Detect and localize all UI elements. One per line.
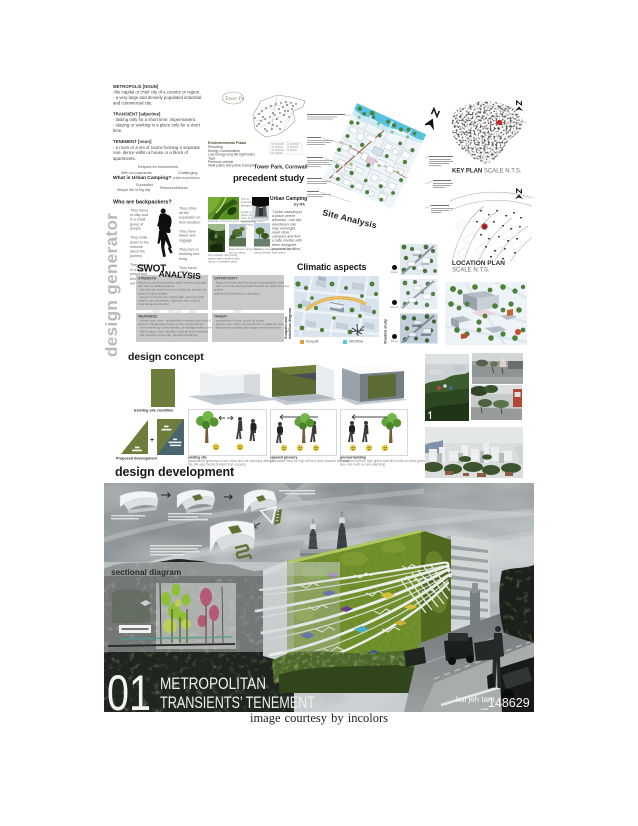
svg-text:Site Analysis: Site Analysis: [322, 207, 379, 230]
svg-text:TRANSIENTS’ TENEMENT: TRANSIENTS’ TENEMENT: [160, 693, 315, 712]
svg-text:01: 01: [107, 665, 151, 712]
svg-text:sectional diagram: sectional diagram: [111, 568, 181, 577]
svg-text:Tower Park: Tower Park: [225, 97, 244, 102]
svg-text:METROPOLITAN: METROPOLITAN: [160, 674, 266, 693]
svg-text:_148629: _148629: [480, 696, 530, 710]
svg-text:+: +: [150, 437, 154, 444]
